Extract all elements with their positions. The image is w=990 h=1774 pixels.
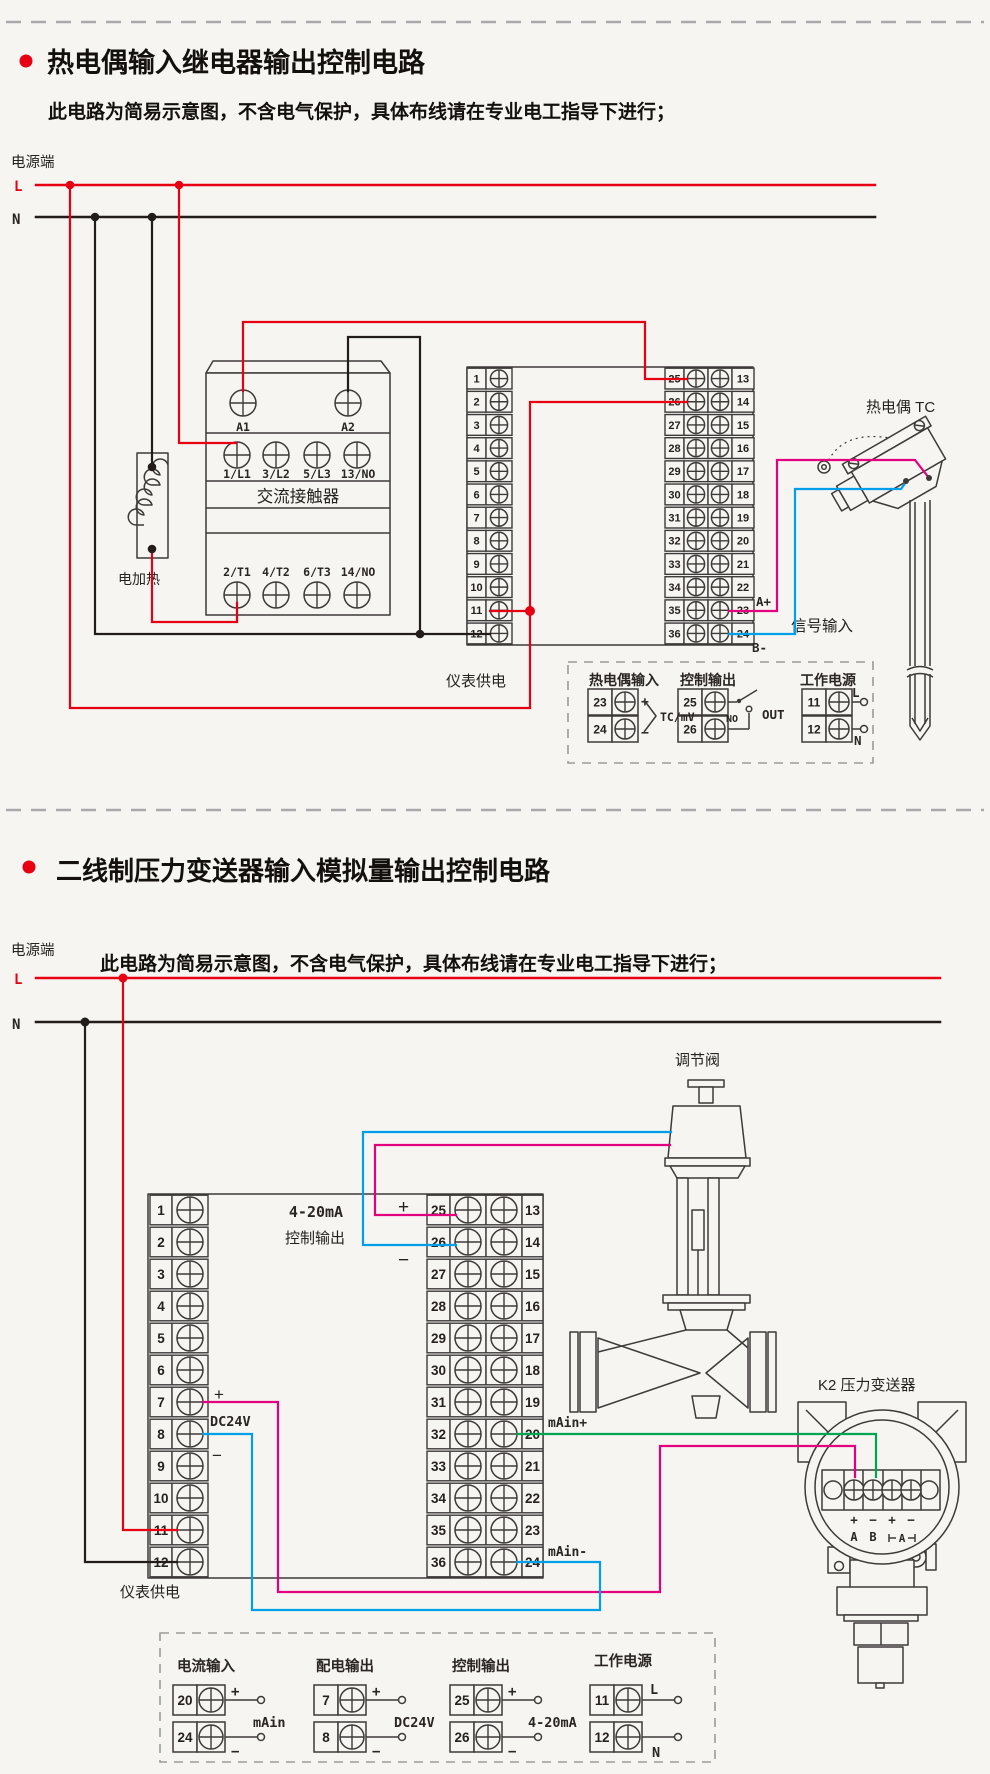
legend-working-power-title: 工作电源: [800, 672, 856, 688]
section1-legend: 热电偶输入 控制输出 工作电源 2324 2526 1112 + − TC/mV…: [568, 662, 873, 763]
terminal-number: 18: [737, 489, 749, 501]
screw-terminal-icon: [687, 579, 704, 596]
terminal-number: 15: [737, 420, 749, 432]
screw-terminal-icon: [490, 555, 507, 572]
terminal-number: 31: [431, 1395, 447, 1410]
terminal-number: 5: [157, 1331, 165, 1346]
screw-terminal-icon: [711, 440, 728, 457]
valve-label: 调节阀: [675, 1052, 720, 1069]
valve-handle-icon: [688, 1080, 724, 1087]
svg-text:N: N: [652, 1745, 660, 1761]
screw-terminal-icon: [829, 692, 849, 712]
screw-terminal-icon: [490, 579, 507, 596]
svg-text:L: L: [852, 685, 860, 700]
section1-subtitle: 此电路为简易示意图，不含电气保护，具体布线请在专业电工指导下进行；: [48, 100, 675, 123]
legend-pwr-terminals: 1112: [802, 689, 852, 742]
screw-terminal-icon: [455, 1197, 481, 1223]
screw-terminal-icon: [687, 393, 704, 410]
screw-terminal-icon: [177, 1517, 203, 1543]
terminal-number: 33: [431, 1459, 447, 1474]
svg-text:6/T3: 6/T3: [303, 565, 331, 579]
screw-terminal-icon: [829, 719, 849, 739]
terminal-number: 20: [737, 536, 749, 548]
screw-terminal-icon: [711, 602, 728, 619]
screw-terminal-icon: [340, 1688, 364, 1712]
tc-probe: [905, 500, 935, 740]
screw-terminal-icon: [711, 370, 728, 387]
screw-terminal-icon: [616, 1725, 640, 1749]
line-n-label: N: [12, 1017, 20, 1033]
svg-text:14/NO: 14/NO: [341, 565, 376, 579]
main-in-minus-label: mAin-: [548, 1545, 587, 1560]
screw-terminal-icon: [344, 442, 370, 468]
relay-no-label: NO: [726, 714, 738, 725]
svg-text:+: +: [888, 1512, 896, 1527]
screw-terminal-icon: [490, 486, 507, 503]
section2-header: 二线制压力变送器输入模拟量输出控制电路 此电路为简易示意图，不含电气保护，具体布…: [23, 856, 728, 975]
contactor-a2-label: A2: [341, 420, 355, 434]
wire-end-circle-icon: [399, 1734, 406, 1741]
svg-text:+: +: [231, 1684, 239, 1700]
screw-terminal-icon: [705, 719, 725, 739]
terminal-number: 33: [668, 559, 680, 571]
terminal-number: 31: [668, 513, 680, 525]
svg-text:−: −: [641, 726, 649, 741]
dc-minus: −: [212, 1446, 222, 1465]
screw-terminal-icon: [711, 555, 728, 572]
screw-terminal-icon: [711, 416, 728, 433]
terminal-number: 4: [473, 443, 480, 455]
terminal-number: 11: [808, 695, 821, 709]
terminal-number: 9: [473, 559, 479, 571]
terminal-number: 20: [177, 1693, 192, 1708]
screw-terminal-icon: [177, 1197, 203, 1223]
bullet-icon: [23, 861, 36, 874]
screw-terminal-icon: [230, 390, 256, 416]
screw-terminal-icon: [491, 1389, 517, 1415]
pressure-transmitter: K2 压力变送器 + − + − A B A: [798, 1377, 966, 1688]
legend-ctrl2-terminals: 2526: [450, 1685, 502, 1752]
screw-terminal-icon: [491, 1261, 517, 1287]
svg-text:2/T1: 2/T1: [223, 565, 251, 579]
terminal-number: 1: [157, 1203, 165, 1218]
line-l-label: L: [14, 972, 22, 988]
terminal-number: 30: [668, 489, 680, 501]
screw-terminal-icon: [711, 486, 728, 503]
svg-text:4/T2: 4/T2: [262, 565, 290, 579]
diagram-canvas: 热电偶输入继电器输出控制电路 此电路为简易示意图，不含电气保护，具体布线请在专业…: [0, 0, 990, 1774]
terminal-number: 25: [683, 695, 697, 709]
legend-current-terminals: 2024: [173, 1685, 225, 1752]
screw-terminal-icon: [177, 1229, 203, 1255]
terminal-number: 17: [525, 1331, 540, 1346]
screw-terminal-icon: [687, 625, 704, 642]
svg-text:3/L2: 3/L2: [262, 467, 290, 481]
tc-mv-note: TC/mV: [660, 710, 695, 724]
section1-power-rails: 电源端 L N: [11, 154, 875, 228]
screw-terminal-icon: [687, 463, 704, 480]
terminal-number: 10: [153, 1491, 168, 1506]
screw-terminal-icon: [490, 509, 507, 526]
terminal-number: 28: [668, 443, 680, 455]
screw-terminal-icon: [687, 440, 704, 457]
screw-terminal-icon: [455, 1261, 481, 1287]
screw-terminal-icon: [901, 1480, 921, 1500]
tc-probe-tip: [910, 726, 930, 740]
screw-terminal-icon: [687, 486, 704, 503]
terminal-number: 14: [737, 397, 750, 409]
wire-end-circle-icon: [258, 1697, 265, 1704]
terminal-number: 26: [454, 1730, 470, 1745]
screw-terminal-icon: [476, 1688, 500, 1712]
svg-text:B: B: [869, 1530, 876, 1544]
terminal-number: 14: [525, 1235, 541, 1250]
terminal-number: 36: [431, 1555, 447, 1570]
screw-terminal-icon: [711, 579, 728, 596]
screw-terminal-icon: [263, 582, 289, 608]
terminal-number: 25: [454, 1693, 470, 1708]
svg-text:A: A: [899, 1532, 906, 1545]
terminal-number: 13: [737, 374, 749, 386]
dc-note: DC24V: [394, 1715, 435, 1731]
terminal-number: 12: [807, 722, 821, 736]
screw-terminal-icon: [491, 1421, 517, 1447]
section1-header: 热电偶输入继电器输出控制电路 此电路为简易示意图，不含电气保护，具体布线请在专业…: [20, 47, 676, 123]
screw-terminal-icon: [491, 1357, 517, 1383]
terminal-number: 4: [157, 1299, 165, 1314]
section1-title: 热电偶输入继电器输出控制电路: [47, 47, 426, 78]
section2-subtitle: 此电路为简易示意图，不含电气保护，具体布线请在专业电工指导下进行；: [100, 952, 727, 975]
ctrl-out-line1: 4-20mA: [289, 1203, 343, 1221]
legend-control-output-title: 控制输出: [452, 1657, 510, 1675]
svg-text:+: +: [372, 1684, 380, 1700]
power-terminal-label: 电源端: [11, 154, 55, 171]
screw-terminal-icon: [491, 1549, 517, 1575]
terminal-number: 3: [473, 420, 479, 432]
tc-connection-head: [822, 416, 959, 533]
legend-tc-input-title: 热电偶输入: [589, 672, 659, 688]
screw-terminal-icon: [177, 1325, 203, 1351]
terminal-number: 36: [668, 628, 680, 640]
terminal-number: 35: [431, 1523, 447, 1538]
screw-terminal-icon: [455, 1357, 481, 1383]
terminal-number: 6: [473, 489, 479, 501]
terminal-number: 26: [683, 722, 697, 736]
screw-terminal-icon: [882, 1480, 902, 1500]
terminal-number: 8: [322, 1730, 330, 1745]
screw-terminal-icon: [177, 1453, 203, 1479]
svg-text:−: −: [869, 1512, 877, 1527]
screw-terminal-icon: [490, 532, 507, 549]
ac-contactor: A1 A2 1/L1 3/L2 5/L3 13/NO 交流接触器 2/T1 4/…: [206, 361, 390, 615]
terminal-number: 7: [473, 513, 479, 525]
main-note: mAin: [253, 1715, 286, 1731]
screw-terminal-icon: [344, 582, 370, 608]
screw-terminal-icon: [711, 532, 728, 549]
screw-terminal-icon: [177, 1357, 203, 1383]
screw-terminal-icon: [687, 555, 704, 572]
contactor-top-face: [206, 361, 390, 373]
screw-terminal-icon: [616, 1688, 640, 1712]
screw-terminal-icon: [335, 390, 361, 416]
terminal-number: 29: [431, 1331, 446, 1346]
terminal-number: 2: [473, 397, 479, 409]
screw-terminal-icon: [455, 1229, 481, 1255]
terminal-number: 23: [593, 695, 607, 709]
screw-terminal-icon: [177, 1293, 203, 1319]
terminal-number: 35: [668, 605, 680, 617]
screw-terminal-icon: [491, 1453, 517, 1479]
screw-terminal-icon: [177, 1261, 203, 1287]
screw-terminal-icon: [177, 1389, 203, 1415]
screw-terminal-icon: [263, 442, 289, 468]
screw-terminal-icon: [490, 463, 507, 480]
electric-heater: 电加热: [118, 453, 168, 587]
screw-terminal-icon: [455, 1421, 481, 1447]
legend-current-input-title: 电流输入: [177, 1657, 235, 1675]
wiring-diagram-page: 热电偶输入继电器输出控制电路 此电路为简易示意图，不含电气保护，具体布线请在专业…: [0, 0, 990, 1774]
screw-terminal-icon: [863, 1480, 883, 1500]
terminal-number: 19: [737, 513, 749, 525]
wire-end-circle-icon: [399, 1697, 406, 1704]
terminal-number: 11: [471, 605, 483, 617]
terminal-number: 32: [668, 536, 680, 548]
terminal-number: 9: [157, 1459, 165, 1474]
terminal-number: 23: [525, 1523, 541, 1538]
screw-terminal-icon: [224, 442, 250, 468]
ctrl-out-line2: 控制输出: [285, 1230, 345, 1247]
thermocouple-label: 热电偶 TC: [866, 399, 935, 416]
screw-terminal-icon: [687, 416, 704, 433]
terminal-number: 24: [593, 722, 607, 736]
terminal-number: 5: [473, 466, 479, 478]
power-terminal-label: 电源端: [11, 942, 55, 959]
terminal-number: 7: [157, 1395, 165, 1410]
screw-terminal-icon: [491, 1517, 517, 1543]
ctrl-minus: −: [398, 1250, 409, 1271]
terminal-number: 7: [322, 1693, 330, 1708]
screw-terminal-icon: [687, 509, 704, 526]
screw-terminal-icon: [687, 532, 704, 549]
screw-terminal-icon: [490, 370, 507, 387]
main-in-plus-label: mAin+: [548, 1416, 587, 1431]
legend-pwr2-terminals: 1112: [590, 1685, 642, 1752]
terminal-number: 1: [473, 374, 479, 386]
b-minus-label: B-: [752, 640, 767, 655]
screw-terminal-icon: [455, 1325, 481, 1351]
line-l-label: L: [14, 179, 22, 195]
screw-terminal-icon: [199, 1725, 223, 1749]
relay-out-label: OUT: [762, 707, 785, 722]
meter-supply-label: 仪表供电: [120, 1584, 180, 1601]
meter-supply-label: 仪表供电: [446, 673, 506, 690]
wire-end-circle-icon: [258, 1734, 265, 1741]
screw-terminal-icon: [687, 370, 704, 387]
terminal-number: 15: [525, 1267, 541, 1282]
svg-text:L: L: [650, 1682, 658, 1698]
screw-terminal-icon: [455, 1517, 481, 1543]
contactor-a1-label: A1: [236, 420, 250, 434]
legend-control-output-title: 控制输出: [680, 672, 736, 688]
screw-terminal-icon: [491, 1197, 517, 1223]
terminal-number: 17: [737, 466, 749, 478]
terminal-number: 27: [431, 1267, 446, 1282]
svg-text:−: −: [907, 1512, 915, 1527]
screw-terminal-icon: [177, 1485, 203, 1511]
svg-text:A: A: [850, 1530, 858, 1544]
valve-actuator: [668, 1106, 746, 1158]
terminal-number: 22: [525, 1491, 540, 1506]
controller-instrument-2: 123456789101112 251326142715281629173018…: [120, 1194, 587, 1601]
a-plus-label: A+: [756, 594, 772, 609]
screw-terminal-icon: [177, 1421, 203, 1447]
ma-note: 4-20mA: [528, 1715, 577, 1731]
legend-working-power-title: 工作电源: [594, 1652, 652, 1670]
wire-end-circle-icon: [675, 1697, 682, 1704]
screw-terminal-icon: [490, 416, 507, 433]
screw-terminal-icon: [455, 1485, 481, 1511]
screw-terminal-icon: [455, 1293, 481, 1319]
screw-terminal-icon: [687, 602, 704, 619]
terminal-number: 16: [525, 1299, 541, 1314]
screw-terminal-icon: [304, 442, 330, 468]
screw-terminal-icon: [491, 1293, 517, 1319]
terminal-number: 6: [157, 1363, 165, 1378]
screw-terminal-icon: [615, 692, 635, 712]
screw-terminal-icon: [490, 440, 507, 457]
terminal-number: 34: [668, 582, 681, 594]
terminal-number: 22: [737, 582, 749, 594]
terminal-number: 2: [157, 1235, 165, 1250]
screw-terminal-icon: [711, 625, 728, 642]
tc-cap-icon: [818, 461, 830, 473]
controller-instrument-1: 123456789101112 251326142715281629173018…: [446, 367, 853, 690]
screw-terminal-icon: [844, 1480, 864, 1500]
control-valve: 调节阀: [570, 1052, 776, 1418]
svg-text:+: +: [508, 1684, 516, 1700]
section2-legend: 电流输入 配电输出 控制输出 工作电源 2024 78 2526 1112 + …: [160, 1633, 715, 1762]
wire-end-circle-icon: [675, 1734, 682, 1741]
relay-blade-icon: [739, 690, 757, 701]
screw-terminal-icon: [490, 625, 507, 642]
screw-terminal-icon: [455, 1453, 481, 1479]
terminal-number: 24: [177, 1730, 193, 1745]
legend-dist-terminals: 78: [314, 1685, 366, 1752]
screw-terminal-icon: [490, 393, 507, 410]
terminal-number: 30: [431, 1363, 446, 1378]
valve-yoke: [677, 1178, 719, 1295]
svg-text:5/L3: 5/L3: [303, 467, 331, 481]
terminal-number: 21: [737, 559, 749, 571]
legend-dist-output-title: 配电输出: [316, 1657, 374, 1675]
terminal-number: 27: [668, 420, 680, 432]
screw-terminal-icon: [304, 582, 330, 608]
terminal-number: 12: [594, 1730, 609, 1745]
svg-text:−: −: [372, 1744, 380, 1760]
heater-label: 电加热: [118, 571, 160, 587]
svg-text:N: N: [854, 733, 862, 748]
terminal-number: 11: [595, 1693, 610, 1708]
legend-tc-terminals: 2324: [588, 689, 638, 742]
screw-terminal-icon: [711, 393, 728, 410]
svg-text:−: −: [508, 1744, 516, 1760]
terminal-number: 26: [431, 1235, 447, 1250]
screw-terminal-icon: [476, 1725, 500, 1749]
svg-text:+: +: [850, 1512, 858, 1527]
wire-end-circle-icon: [535, 1734, 542, 1741]
screw-terminal-icon: [491, 1325, 517, 1351]
terminal-number: 10: [470, 582, 482, 594]
bullet-icon: [20, 55, 33, 68]
screw-terminal-icon: [615, 719, 635, 739]
line-n-label: N: [12, 212, 20, 228]
transmitter-label: K2 压力变送器: [818, 1377, 916, 1394]
transmitter-process-connection: [837, 1587, 927, 1688]
screw-terminal-icon: [340, 1725, 364, 1749]
terminal-number: 18: [525, 1363, 541, 1378]
terminal-number: 3: [157, 1267, 165, 1282]
section2-title: 二线制压力变送器输入模拟量输出控制电路: [56, 856, 551, 886]
screw-terminal-icon: [199, 1688, 223, 1712]
terminal-number: 34: [431, 1491, 447, 1506]
screw-terminal-icon: [491, 1229, 517, 1255]
screw-terminal-icon: [705, 692, 725, 712]
screw-terminal-icon: [455, 1389, 481, 1415]
terminal-number: 8: [157, 1427, 165, 1442]
valve-bonnet: [680, 1310, 733, 1330]
signal-input-label: 信号输入: [791, 617, 853, 635]
terminal-number: 19: [525, 1395, 540, 1410]
terminal-number: 8: [473, 536, 479, 548]
valve-body: [570, 1330, 776, 1418]
terminal-number: 16: [737, 443, 749, 455]
screw-terminal-icon: [177, 1549, 203, 1575]
svg-text:13/NO: 13/NO: [341, 467, 376, 481]
screw-terminal-icon: [711, 509, 728, 526]
terminal-number: 13: [525, 1203, 541, 1218]
contactor-name: 交流接触器: [257, 487, 340, 506]
dc24v-label: DC24V: [210, 1414, 251, 1430]
screw-terminal-icon: [455, 1549, 481, 1575]
svg-text:−: −: [231, 1744, 239, 1760]
terminal-number: 21: [525, 1459, 541, 1474]
screw-terminal-icon: [491, 1485, 517, 1511]
terminal-number: 28: [431, 1299, 447, 1314]
svg-text:1/L1: 1/L1: [223, 467, 251, 481]
terminal-number: 32: [431, 1427, 446, 1442]
screw-terminal-icon: [711, 463, 728, 480]
wire-end-circle-icon: [535, 1697, 542, 1704]
terminal-number: 29: [668, 466, 680, 478]
